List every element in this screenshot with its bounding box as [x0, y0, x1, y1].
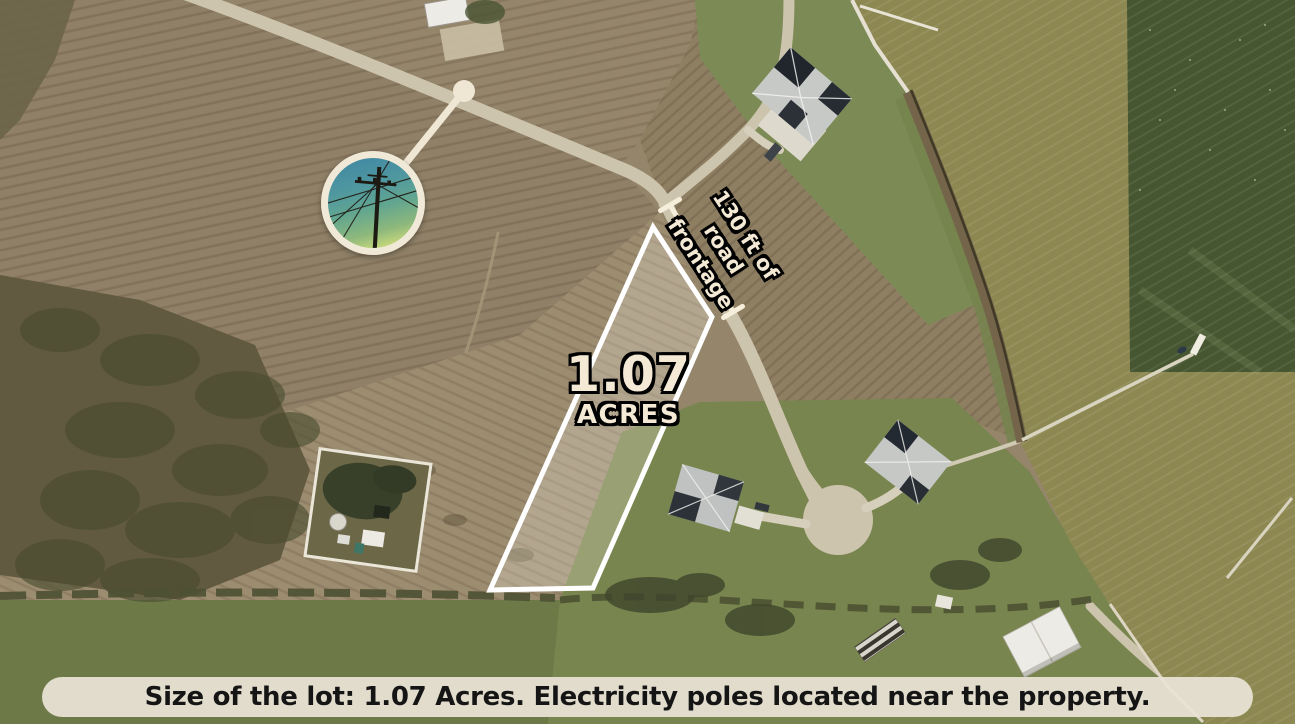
- caption-text: Size of the lot: 1.07 Acres. Electricity…: [145, 682, 1151, 712]
- caption-bar: Size of the lot: 1.07 Acres. Electricity…: [42, 677, 1253, 717]
- acreage-label: 1.07 ACRES: [556, 350, 701, 428]
- inset-marker-dot: [453, 80, 475, 102]
- aerial-lot-screenshot: 1.07 ACRES 130 ft of road frontage Size …: [0, 0, 1295, 724]
- acreage-value: 1.07: [556, 350, 701, 399]
- acreage-unit: ACRES: [556, 402, 701, 428]
- fenced-compound: [305, 449, 431, 572]
- electricity-pole-icon: [328, 158, 418, 248]
- pole-photo-inset: [321, 151, 425, 255]
